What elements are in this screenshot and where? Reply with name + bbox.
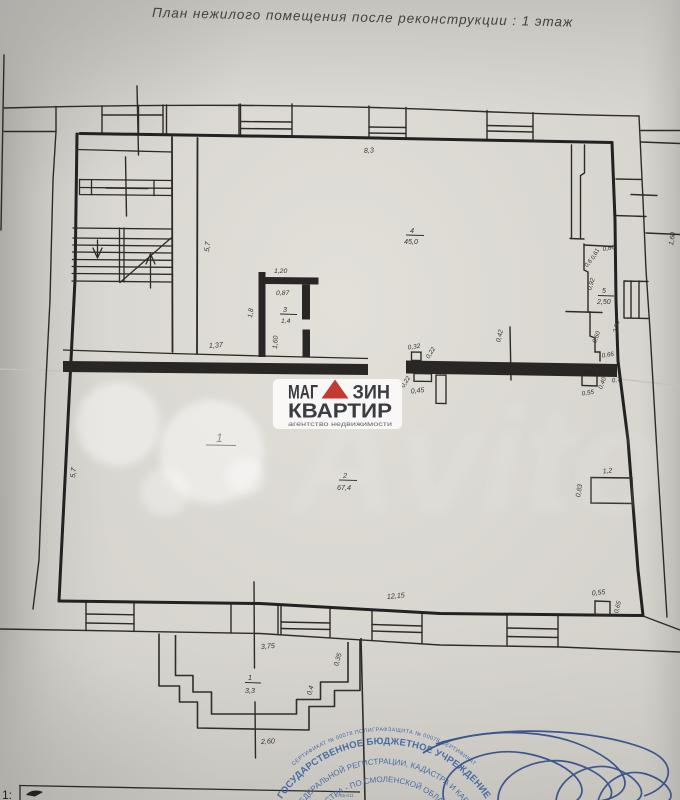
svg-text:КВАРТИР: КВАРТИР [288,401,392,423]
svg-text:1:: 1: [2,788,12,800]
svg-text:1,37: 1,37 [209,340,225,350]
svg-text:12,15: 12,15 [386,590,406,601]
svg-text:агентство недвижимости: агентство недвижимости [288,422,392,428]
svg-text:3,75: 3,75 [261,641,277,651]
svg-text:1,20: 1,20 [274,268,287,275]
svg-text:3,3: 3,3 [245,686,255,695]
svg-text:2,60: 2,60 [260,736,275,746]
svg-text:45,0: 45,0 [404,237,418,246]
svg-text:3: 3 [283,305,287,314]
svg-text:1,60: 1,60 [272,335,280,349]
svg-text:8,3: 8,3 [364,145,375,155]
svg-text:5: 5 [602,288,606,295]
svg-text:1,4: 1,4 [281,318,291,325]
svg-text:0,55: 0,55 [591,589,605,597]
svg-text:1: 1 [248,673,252,682]
svg-text:2,50: 2,50 [596,299,611,306]
svg-text:4: 4 [410,226,414,235]
svg-text:1765-011: 1765-011 [335,793,354,798]
svg-text:0,87: 0,87 [276,290,289,297]
svg-text:1,8: 1,8 [247,308,255,319]
